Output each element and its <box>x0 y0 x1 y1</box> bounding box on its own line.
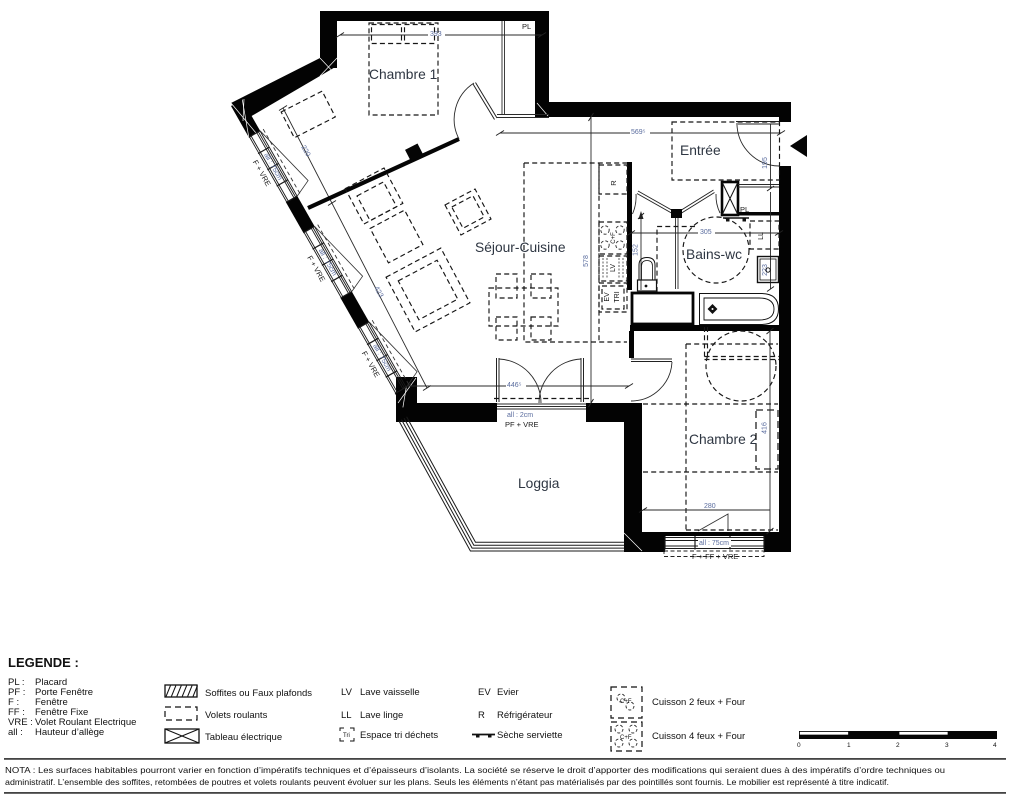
svg-text:C+F: C+F <box>620 699 632 705</box>
svg-text:TRI: TRI <box>614 291 621 302</box>
svg-text:C+F: C+F <box>611 232 617 244</box>
svg-text:LEGENDE :: LEGENDE : <box>8 655 79 670</box>
svg-text:Réfrigérateur: Réfrigérateur <box>497 710 552 721</box>
svg-text:EV: EV <box>478 687 491 698</box>
svg-text:416: 416 <box>762 422 769 434</box>
svg-text:PL: PL <box>522 22 531 31</box>
svg-text:administratif. L’ensemble des: administratif. L’ensemble des soffites, … <box>5 777 889 787</box>
svg-text:R: R <box>609 180 618 186</box>
svg-text:Hauteur d’allège: Hauteur d’allège <box>35 727 104 738</box>
svg-text:Séjour-Cuisine: Séjour-Cuisine <box>475 240 566 255</box>
svg-text:446⁵: 446⁵ <box>507 382 522 389</box>
svg-text:LV: LV <box>341 687 353 698</box>
svg-text:Entrée: Entrée <box>680 143 721 158</box>
svg-text:Volets roulants: Volets roulants <box>205 710 268 721</box>
svg-text:all :: all : <box>8 727 23 738</box>
svg-text:Lave vaisselle: Lave vaisselle <box>360 687 420 698</box>
svg-text:0: 0 <box>797 742 801 749</box>
svg-text:280: 280 <box>704 503 716 510</box>
svg-text:Tri: Tri <box>343 733 350 739</box>
svg-text:Cuisson 4 feux + Four: Cuisson 4 feux + Four <box>652 731 745 742</box>
svg-text:1: 1 <box>847 742 851 749</box>
svg-text:Chambre 1: Chambre 1 <box>369 67 437 82</box>
svg-text:305: 305 <box>700 229 712 236</box>
svg-text:EV: EV <box>604 292 611 302</box>
svg-text:3: 3 <box>945 742 949 749</box>
svg-text:578: 578 <box>583 255 590 267</box>
svg-text:Loggia: Loggia <box>518 476 560 491</box>
svg-text:all : 2cm: all : 2cm <box>507 412 533 419</box>
svg-text:195: 195 <box>762 157 769 169</box>
svg-text:R: R <box>478 710 485 721</box>
svg-text:Soffites ou Faux plafonds: Soffites ou Faux plafonds <box>205 688 312 699</box>
svg-text:Chambre 2: Chambre 2 <box>689 432 757 447</box>
svg-text:PF + VRE: PF + VRE <box>505 420 539 429</box>
svg-text:LL: LL <box>341 710 352 721</box>
svg-text:all : 75cm: all : 75cm <box>699 540 729 547</box>
svg-text:Sèche serviette: Sèche serviette <box>497 730 562 741</box>
svg-text:F + FF + VRE: F + FF + VRE <box>692 552 738 561</box>
svg-text:Cuisson 2 feux + Four: Cuisson 2 feux + Four <box>652 697 745 708</box>
svg-text:Bains-wc: Bains-wc <box>686 247 742 262</box>
svg-text:Espace tri déchets: Espace tri déchets <box>360 730 438 741</box>
svg-text:NOTA : Les surfaces habitables: NOTA : Les surfaces habitables pourront … <box>5 765 945 775</box>
svg-text:LL: LL <box>758 232 765 240</box>
svg-text:393: 393 <box>430 31 442 38</box>
svg-text:152: 152 <box>633 244 640 256</box>
svg-text:Tableau électrique: Tableau électrique <box>205 732 282 743</box>
svg-text:569⁵: 569⁵ <box>631 129 646 136</box>
svg-text:Lave linge: Lave linge <box>360 710 403 721</box>
svg-text:4: 4 <box>993 742 997 749</box>
svg-text:C+F: C+F <box>620 735 632 741</box>
svg-text:2: 2 <box>896 742 900 749</box>
svg-text:Evier: Evier <box>497 687 519 698</box>
svg-text:LV: LV <box>610 264 617 272</box>
